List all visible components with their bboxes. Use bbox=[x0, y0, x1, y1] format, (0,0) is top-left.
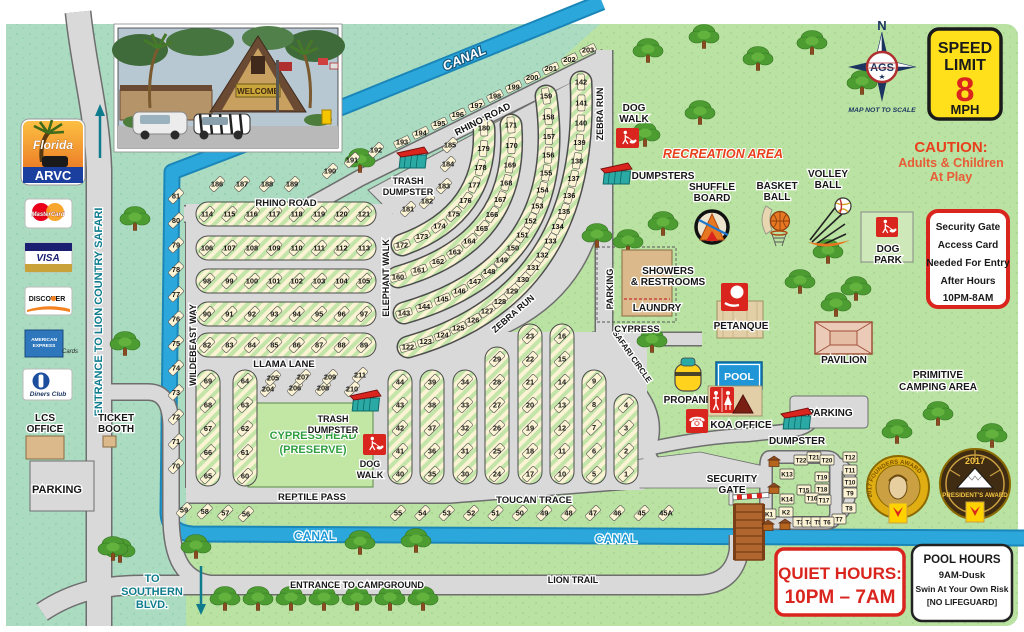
svg-text:108: 108 bbox=[246, 244, 258, 253]
rhino-road-label: RHINO ROAD bbox=[255, 198, 316, 209]
svg-text:133: 133 bbox=[544, 237, 556, 246]
svg-text:& RESTROOMS: & RESTROOMS bbox=[631, 277, 706, 288]
quiet-hours-box: QUIET HOURS: 10PM – 7AM bbox=[776, 549, 904, 615]
svg-text:165: 165 bbox=[476, 224, 488, 233]
site-T17: T17 bbox=[817, 495, 831, 505]
svg-text:10PM – 7AM: 10PM – 7AM bbox=[785, 587, 896, 608]
svg-text:38: 38 bbox=[428, 401, 436, 410]
svg-text:AMERICAN: AMERICAN bbox=[31, 337, 57, 343]
svg-text:184: 184 bbox=[442, 160, 455, 169]
zebra-run-label-top: ZEBRA RUN bbox=[595, 88, 605, 141]
recreation-area-label: RECREATION AREA bbox=[663, 147, 783, 161]
svg-text:5: 5 bbox=[592, 470, 596, 479]
svg-text:163: 163 bbox=[449, 247, 461, 256]
svg-text:77: 77 bbox=[172, 290, 180, 299]
svg-text:164: 164 bbox=[463, 236, 476, 245]
site-143: 143 bbox=[395, 307, 412, 318]
svg-text:62: 62 bbox=[241, 424, 249, 433]
pavilion: PAVILION bbox=[815, 322, 872, 366]
svg-text:148: 148 bbox=[483, 267, 495, 276]
svg-text:BASKET: BASKET bbox=[756, 181, 797, 192]
laundry-label: LAUNDRY bbox=[633, 303, 682, 314]
svg-text:94: 94 bbox=[293, 310, 302, 319]
svg-text:143: 143 bbox=[398, 309, 410, 318]
svg-text:56: 56 bbox=[242, 510, 250, 519]
site-T19: T19 bbox=[815, 472, 829, 482]
svg-text:125: 125 bbox=[452, 323, 464, 332]
svg-text:84: 84 bbox=[248, 341, 257, 350]
svg-text:T12: T12 bbox=[845, 454, 856, 461]
svg-text:188: 188 bbox=[261, 180, 273, 189]
svg-text:90: 90 bbox=[203, 310, 211, 319]
canal-label-bottom-right: CANAL bbox=[595, 532, 637, 546]
dog-walk-icon-2 bbox=[363, 434, 386, 455]
site-172: 172 bbox=[393, 239, 410, 251]
svg-text:210: 210 bbox=[346, 385, 358, 394]
svg-text:192: 192 bbox=[370, 146, 382, 155]
svg-text:18: 18 bbox=[526, 447, 534, 456]
svg-text:89: 89 bbox=[360, 341, 368, 350]
svg-text:54: 54 bbox=[418, 509, 427, 518]
site-T9: T9 bbox=[843, 488, 857, 498]
svg-text:140: 140 bbox=[575, 119, 587, 128]
svg-text:32: 32 bbox=[461, 424, 469, 433]
svg-text:179: 179 bbox=[477, 144, 489, 153]
site-161: 161 bbox=[410, 264, 428, 276]
svg-text:T18: T18 bbox=[817, 486, 828, 493]
svg-text:205: 205 bbox=[267, 374, 279, 383]
svg-text:127: 127 bbox=[481, 307, 493, 316]
svg-text:T9: T9 bbox=[846, 490, 854, 497]
svg-text:7: 7 bbox=[592, 423, 596, 432]
svg-text:SHUFFLE: SHUFFLE bbox=[689, 182, 735, 193]
svg-text:37: 37 bbox=[428, 424, 436, 433]
svg-text:K1: K1 bbox=[765, 511, 774, 518]
svg-text:102: 102 bbox=[291, 277, 303, 286]
wildebeast-way-label: WILDEBEAST WAY bbox=[188, 304, 198, 386]
svg-text:203: 203 bbox=[582, 46, 594, 55]
svg-text:DISCOVER: DISCOVER bbox=[29, 296, 66, 303]
svg-text:Swin At Your Own Risk: Swin At Your Own Risk bbox=[916, 584, 1009, 594]
svg-text:176: 176 bbox=[459, 196, 471, 205]
svg-text:T21: T21 bbox=[809, 454, 820, 461]
cypress-street-label: CYPRESS bbox=[614, 324, 659, 335]
svg-text:22: 22 bbox=[526, 355, 534, 364]
svg-text:126: 126 bbox=[467, 315, 479, 324]
svg-text:121: 121 bbox=[358, 210, 370, 219]
svg-text:34: 34 bbox=[461, 378, 470, 387]
svg-text:211: 211 bbox=[354, 371, 366, 380]
svg-text:78: 78 bbox=[172, 265, 180, 274]
svg-text:15: 15 bbox=[558, 355, 566, 364]
svg-text:134: 134 bbox=[551, 222, 564, 231]
svg-text:T8: T8 bbox=[845, 505, 853, 512]
svg-text:41: 41 bbox=[396, 447, 404, 456]
svg-text:156: 156 bbox=[542, 151, 554, 160]
svg-text:114: 114 bbox=[201, 210, 214, 219]
svg-text:EXPRESS: EXPRESS bbox=[33, 343, 56, 349]
entrance-lcs-label: ENTRANCE TO LION COUNTRY SAFARI bbox=[93, 208, 105, 417]
svg-text:67: 67 bbox=[204, 424, 212, 433]
svg-text:DUMPSTERS: DUMPSTERS bbox=[632, 171, 695, 182]
svg-text:200: 200 bbox=[526, 73, 538, 82]
svg-text:45: 45 bbox=[637, 509, 645, 518]
svg-text:20: 20 bbox=[526, 401, 534, 410]
svg-text:CAMPING AREA: CAMPING AREA bbox=[899, 382, 977, 393]
entrance-campground-label: ENTRANCE TO CAMPGROUND bbox=[290, 580, 424, 590]
elephant-walk-label: ELEPHANT WALK bbox=[381, 239, 391, 317]
svg-text:DUMPSTER: DUMPSTER bbox=[769, 436, 826, 447]
svg-text:124: 124 bbox=[436, 331, 449, 340]
svg-text:T10: T10 bbox=[845, 479, 856, 486]
svg-text:138: 138 bbox=[571, 156, 583, 165]
svg-text:159: 159 bbox=[540, 92, 552, 101]
canal-label-bottom-left: CANAL bbox=[294, 529, 336, 543]
site-160: 160 bbox=[389, 271, 406, 282]
parking-pavilion-label: PARKING bbox=[807, 408, 853, 419]
svg-text:198: 198 bbox=[489, 92, 501, 101]
site-122: 122 bbox=[399, 341, 416, 352]
svg-text:136: 136 bbox=[563, 191, 575, 200]
dog-park-icon bbox=[876, 217, 898, 237]
svg-text:1: 1 bbox=[624, 470, 628, 479]
svg-text:63: 63 bbox=[241, 400, 249, 409]
svg-text:9AM-Dusk: 9AM-Dusk bbox=[939, 570, 986, 581]
svg-text:81: 81 bbox=[172, 192, 180, 201]
svg-text:197: 197 bbox=[470, 101, 482, 110]
svg-text:☎: ☎ bbox=[688, 414, 705, 430]
svg-text:74: 74 bbox=[172, 363, 181, 372]
svg-text:Access Card: Access Card bbox=[938, 240, 999, 251]
svg-text:72: 72 bbox=[172, 413, 180, 422]
svg-text:Cards: Cards bbox=[62, 349, 78, 355]
svg-text:111: 111 bbox=[313, 244, 325, 253]
svg-text:8: 8 bbox=[592, 400, 596, 409]
site-144: 144 bbox=[415, 300, 432, 312]
svg-text:DUMPSTER: DUMPSTER bbox=[308, 425, 359, 435]
svg-text:204: 204 bbox=[262, 385, 275, 394]
svg-text:21: 21 bbox=[526, 378, 534, 387]
svg-text:123: 123 bbox=[420, 337, 432, 346]
svg-text:70: 70 bbox=[172, 462, 180, 471]
svg-text:LCS: LCS bbox=[35, 413, 55, 424]
svg-text:Needed For Entry: Needed For Entry bbox=[926, 258, 1010, 269]
svg-text:131: 131 bbox=[527, 263, 539, 272]
svg-text:80: 80 bbox=[172, 216, 180, 225]
svg-text:71: 71 bbox=[172, 437, 180, 446]
svg-text:170: 170 bbox=[505, 141, 517, 150]
site-T18: T18 bbox=[815, 484, 829, 494]
svg-text:MPH: MPH bbox=[951, 102, 980, 117]
svg-text:186: 186 bbox=[211, 180, 223, 189]
svg-text:117: 117 bbox=[268, 210, 280, 219]
svg-text:181: 181 bbox=[402, 205, 414, 214]
svg-text:113: 113 bbox=[358, 244, 370, 253]
svg-text:109: 109 bbox=[268, 244, 280, 253]
svg-text:WALK: WALK bbox=[357, 470, 384, 480]
svg-text:202: 202 bbox=[563, 55, 575, 64]
svg-text:12: 12 bbox=[558, 424, 566, 433]
svg-text:60: 60 bbox=[241, 472, 249, 481]
svg-text:28: 28 bbox=[493, 378, 501, 387]
ticket-booth-structure bbox=[103, 436, 116, 447]
svg-text:151: 151 bbox=[516, 230, 528, 239]
svg-text:T19: T19 bbox=[817, 474, 828, 481]
svg-text:146: 146 bbox=[453, 286, 465, 295]
svg-text:VOLLEY: VOLLEY bbox=[808, 169, 848, 180]
svg-text:[NO LIFEGUARD]: [NO LIFEGUARD] bbox=[927, 597, 998, 607]
svg-text:T22: T22 bbox=[796, 457, 807, 464]
svg-text:92: 92 bbox=[248, 310, 256, 319]
svg-text:190: 190 bbox=[324, 167, 336, 176]
svg-text:BALL: BALL bbox=[815, 180, 842, 191]
svg-text:83: 83 bbox=[225, 341, 233, 350]
welcome-photo-inset: WELCOME bbox=[112, 24, 345, 152]
site-K13: K13 bbox=[780, 469, 794, 479]
svg-text:10: 10 bbox=[558, 470, 566, 479]
svg-text:T6: T6 bbox=[823, 519, 831, 526]
svg-text:(PRESERVE): (PRESERVE) bbox=[279, 444, 346, 456]
svg-text:TICKET: TICKET bbox=[98, 413, 134, 424]
svg-text:101: 101 bbox=[268, 277, 280, 286]
svg-text:27: 27 bbox=[493, 401, 501, 410]
svg-text:13: 13 bbox=[558, 401, 566, 410]
svg-text:105: 105 bbox=[358, 277, 370, 286]
parking-west-label: PARKING bbox=[32, 484, 82, 496]
svg-text:100: 100 bbox=[246, 277, 258, 286]
svg-text:23: 23 bbox=[526, 332, 534, 341]
svg-text:172: 172 bbox=[396, 241, 408, 250]
svg-text:3: 3 bbox=[624, 424, 628, 433]
svg-text:191: 191 bbox=[346, 156, 358, 165]
svg-text:T20: T20 bbox=[822, 457, 833, 464]
svg-text:51: 51 bbox=[491, 509, 499, 518]
svg-text:139: 139 bbox=[573, 138, 585, 147]
mastercard-logo: MasterCard bbox=[25, 199, 72, 228]
site-T6: T6 bbox=[820, 517, 834, 527]
map-not-to-scale: MAP NOT TO SCALE bbox=[848, 107, 916, 114]
to-southern-3: BLVD. bbox=[136, 599, 168, 611]
svg-text:87: 87 bbox=[315, 341, 323, 350]
svg-text:116: 116 bbox=[246, 210, 258, 219]
svg-text:162: 162 bbox=[432, 257, 444, 266]
svg-text:183: 183 bbox=[438, 182, 450, 191]
site-K2: K2 bbox=[779, 507, 793, 517]
svg-text:48: 48 bbox=[564, 509, 572, 518]
rv-silhouette bbox=[42, 156, 68, 167]
welcome-sign-text: WELCOME bbox=[237, 87, 279, 96]
svg-text:44: 44 bbox=[396, 378, 405, 387]
svg-text:T17: T17 bbox=[819, 497, 830, 504]
svg-text:86: 86 bbox=[293, 341, 301, 350]
svg-text:DOG: DOG bbox=[877, 244, 900, 255]
svg-text:115: 115 bbox=[223, 210, 235, 219]
pool-label: POOL bbox=[724, 371, 754, 383]
svg-text:129: 129 bbox=[506, 287, 518, 296]
svg-text:135: 135 bbox=[558, 207, 570, 216]
svg-text:9: 9 bbox=[592, 377, 596, 386]
svg-text:50: 50 bbox=[516, 509, 524, 518]
svg-text:39: 39 bbox=[428, 378, 436, 387]
to-southern-1: TO bbox=[144, 573, 160, 585]
svg-text:QUIET HOURS:: QUIET HOURS: bbox=[778, 564, 902, 583]
speed-limit-sign: SPEED LIMIT 8 MPH bbox=[929, 29, 1001, 119]
florida-script: Florida bbox=[33, 138, 73, 152]
svg-text:96: 96 bbox=[337, 310, 345, 319]
site-T10: T10 bbox=[843, 477, 857, 487]
svg-text:207: 207 bbox=[297, 373, 309, 382]
svg-text:158: 158 bbox=[542, 112, 554, 121]
visa-logo: VISA bbox=[25, 243, 72, 272]
svg-text:69: 69 bbox=[204, 377, 212, 386]
svg-text:64: 64 bbox=[241, 377, 250, 386]
svg-text:85: 85 bbox=[270, 341, 278, 350]
svg-text:82: 82 bbox=[203, 341, 211, 350]
svg-text:168: 168 bbox=[500, 178, 512, 187]
svg-text:66: 66 bbox=[204, 448, 212, 457]
svg-text:174: 174 bbox=[433, 222, 446, 231]
svg-text:68: 68 bbox=[204, 400, 212, 409]
svg-text:25: 25 bbox=[493, 447, 501, 456]
site-124: 124 bbox=[434, 329, 452, 342]
svg-text:175: 175 bbox=[448, 210, 460, 219]
svg-text:201: 201 bbox=[545, 64, 557, 73]
bridge bbox=[733, 504, 765, 560]
svg-text:97: 97 bbox=[360, 310, 368, 319]
site-T20: T20 bbox=[820, 455, 834, 465]
svg-text:T7: T7 bbox=[835, 516, 843, 523]
svg-text:61: 61 bbox=[241, 448, 249, 457]
svg-text:118: 118 bbox=[291, 210, 303, 219]
svg-text:154: 154 bbox=[536, 185, 549, 194]
discover-logo: DISCOVER bbox=[25, 287, 72, 315]
svg-text:177: 177 bbox=[468, 180, 480, 189]
svg-text:153: 153 bbox=[531, 201, 543, 210]
svg-text:MasterCard: MasterCard bbox=[31, 212, 64, 218]
svg-text:112: 112 bbox=[336, 244, 348, 253]
svg-text:178: 178 bbox=[474, 163, 486, 172]
svg-text:10PM-8AM: 10PM-8AM bbox=[943, 293, 994, 304]
svg-text:65: 65 bbox=[204, 472, 212, 481]
svg-text:147: 147 bbox=[469, 277, 481, 286]
svg-text:79: 79 bbox=[172, 241, 180, 250]
svg-text:After Hours: After Hours bbox=[940, 276, 995, 287]
site-123: 123 bbox=[417, 335, 434, 347]
svg-text:43: 43 bbox=[396, 401, 404, 410]
svg-text:152: 152 bbox=[524, 216, 536, 225]
volleyball-icon bbox=[835, 198, 851, 214]
svg-text:11: 11 bbox=[558, 447, 566, 456]
svg-text:K2: K2 bbox=[782, 509, 791, 516]
svg-text:185: 185 bbox=[444, 141, 456, 150]
svg-text:26: 26 bbox=[493, 424, 501, 433]
arvc-text: ARVC bbox=[35, 168, 72, 183]
svg-text:24: 24 bbox=[493, 470, 502, 479]
svg-text:167: 167 bbox=[494, 195, 506, 204]
svg-text:30: 30 bbox=[461, 470, 469, 479]
svg-text:195: 195 bbox=[433, 119, 445, 128]
svg-text:47: 47 bbox=[589, 509, 597, 518]
svg-text:POOL HOURS: POOL HOURS bbox=[923, 554, 1000, 566]
svg-text:122: 122 bbox=[402, 343, 414, 352]
svg-text:189: 189 bbox=[286, 180, 298, 189]
svg-text:46: 46 bbox=[613, 509, 621, 518]
diners-club-logo: Diners Club bbox=[23, 369, 72, 400]
svg-text:206: 206 bbox=[289, 384, 301, 393]
site-T22: T22 bbox=[794, 455, 808, 465]
pool-hours-box: POOL HOURS 9AM-Dusk Swin At Your Own Ris… bbox=[912, 545, 1012, 621]
svg-text:93: 93 bbox=[270, 310, 278, 319]
svg-text:PAVILION: PAVILION bbox=[821, 355, 867, 366]
svg-text:T11: T11 bbox=[845, 467, 856, 474]
site-K14: K14 bbox=[780, 494, 794, 504]
reptile-pass-label: REPTILE PASS bbox=[278, 492, 346, 503]
svg-text:91: 91 bbox=[225, 310, 233, 319]
pool: POOL bbox=[716, 362, 762, 389]
svg-text:49: 49 bbox=[540, 509, 548, 518]
svg-text:DUMPSTER: DUMPSTER bbox=[383, 187, 434, 197]
svg-text:Diners Club: Diners Club bbox=[30, 391, 67, 398]
svg-text:K14: K14 bbox=[781, 496, 793, 503]
svg-text:104: 104 bbox=[335, 277, 348, 286]
svg-text:150: 150 bbox=[507, 243, 519, 252]
svg-text:55: 55 bbox=[394, 509, 402, 518]
koa-office-label: KOA OFFICE bbox=[710, 420, 772, 431]
svg-text:99: 99 bbox=[225, 277, 233, 286]
svg-text:SECURITY: SECURITY bbox=[707, 474, 758, 485]
svg-text:53: 53 bbox=[443, 509, 451, 518]
svg-text:166: 166 bbox=[486, 210, 498, 219]
svg-text:T16: T16 bbox=[807, 495, 818, 502]
presidents-award-text: PRESIDENT'S AWARD bbox=[942, 492, 1008, 499]
svg-text:120: 120 bbox=[335, 210, 347, 219]
svg-text:At Play: At Play bbox=[930, 170, 972, 184]
svg-text:PETANQUE: PETANQUE bbox=[714, 321, 769, 332]
svg-text:42: 42 bbox=[396, 424, 404, 433]
svg-text:2: 2 bbox=[624, 447, 628, 456]
svg-text:33: 33 bbox=[461, 401, 469, 410]
svg-text:BOARD: BOARD bbox=[694, 193, 731, 204]
propane-tank bbox=[675, 364, 701, 391]
svg-text:173: 173 bbox=[416, 232, 428, 241]
svg-text:WALK: WALK bbox=[619, 114, 649, 125]
svg-text:14: 14 bbox=[558, 378, 567, 387]
lcs-office-building bbox=[26, 436, 64, 459]
svg-text:88: 88 bbox=[337, 341, 345, 350]
svg-text:107: 107 bbox=[223, 244, 235, 253]
svg-text:35: 35 bbox=[428, 470, 436, 479]
site-T11: T11 bbox=[843, 465, 857, 475]
svg-text:36: 36 bbox=[428, 447, 436, 456]
svg-text:SPEED: SPEED bbox=[938, 40, 992, 57]
svg-text:29: 29 bbox=[493, 355, 501, 364]
svg-text:119: 119 bbox=[313, 210, 325, 219]
yellow-bin bbox=[322, 110, 331, 124]
svg-text:169: 169 bbox=[504, 160, 516, 169]
map-canvas: 1141151161171181191201211061071081091101… bbox=[0, 0, 1024, 632]
svg-text:40: 40 bbox=[396, 470, 404, 479]
svg-text:19: 19 bbox=[526, 424, 534, 433]
svg-text:199: 199 bbox=[507, 82, 519, 91]
site-T12: T12 bbox=[843, 452, 857, 462]
svg-text:59: 59 bbox=[180, 506, 188, 515]
svg-text:SHOWERS: SHOWERS bbox=[642, 266, 694, 277]
campground-map: 1141151161171181191201211061071081091101… bbox=[0, 0, 1024, 632]
svg-text:17: 17 bbox=[526, 470, 534, 479]
svg-text:142: 142 bbox=[575, 78, 587, 87]
svg-text:73: 73 bbox=[172, 388, 180, 397]
svg-text:160: 160 bbox=[392, 273, 404, 282]
